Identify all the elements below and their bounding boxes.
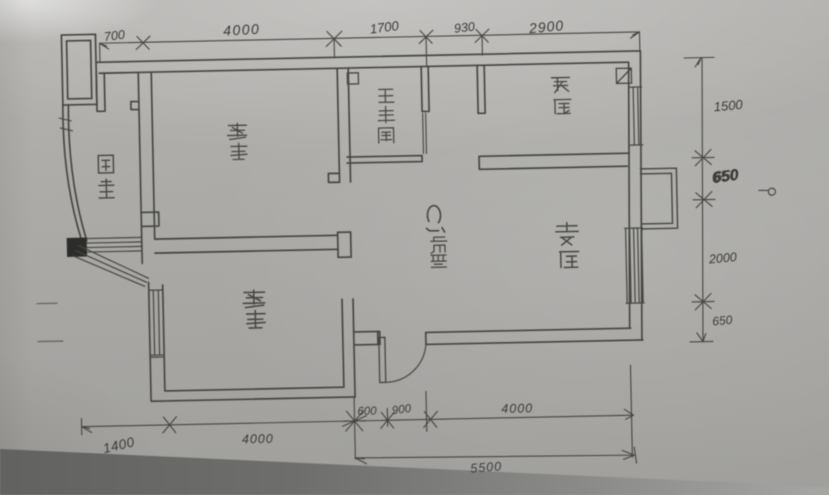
svg-text:2900: 2900 [527,17,564,36]
svg-text:4000: 4000 [242,432,274,447]
svg-text:900: 900 [391,403,412,417]
svg-text:930: 930 [453,20,475,36]
svg-text:600: 600 [357,406,377,418]
svg-text:700: 700 [103,28,125,45]
svg-text:2000: 2000 [707,250,737,267]
svg-text:650: 650 [712,313,734,329]
svg-text:5500: 5500 [470,459,503,475]
svg-text:1400: 1400 [101,434,136,456]
svg-text:650: 650 [713,167,740,186]
svg-text:4000: 4000 [501,401,533,416]
svg-text:1500: 1500 [713,97,744,115]
svg-text:4000: 4000 [223,21,261,39]
svg-text:1700: 1700 [369,18,400,37]
